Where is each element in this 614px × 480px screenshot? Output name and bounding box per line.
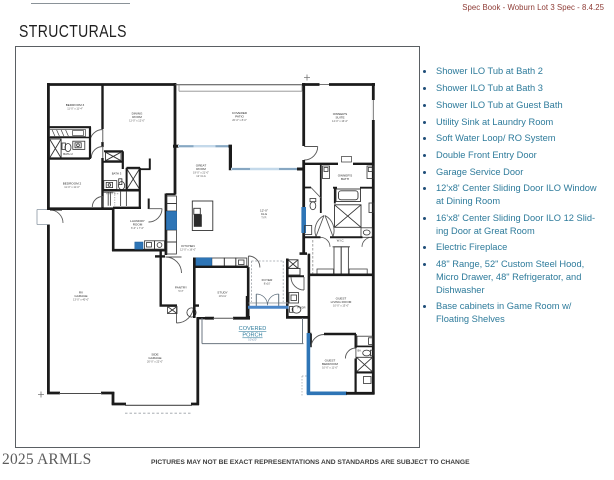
svg-text:GARAGE: GARAGE [148, 356, 161, 360]
svg-text:11'-0" x 11'-4": 11'-0" x 11'-4" [67, 107, 83, 111]
svg-text:BEDROOM: BEDROOM [322, 362, 338, 366]
svg-text:6'-0" x 7'-0": 6'-0" x 7'-0" [131, 226, 144, 230]
svg-text:20'-0" x 22'-0": 20'-0" x 22'-0" [147, 360, 163, 364]
svg-text:LIVING ROOM: LIVING ROOM [331, 300, 352, 304]
svg-text:FOYER: FOYER [262, 278, 273, 282]
svg-text:11'-0" x 11'-0": 11'-0" x 11'-0" [64, 185, 80, 189]
svg-text:W.I.C.: W.I.C. [337, 239, 345, 243]
svg-text:BEDROOM 2: BEDROOM 2 [63, 182, 82, 186]
svg-text:ROOM: ROOM [132, 115, 142, 119]
svg-text:BA.: BA. [357, 350, 361, 353]
svg-text:PATIO: PATIO [235, 115, 244, 119]
svg-text:BATH 2: BATH 2 [63, 152, 73, 156]
svg-text:KITCHEN: KITCHEN [181, 244, 195, 248]
svg-text:TYP.: TYP. [261, 216, 267, 220]
svg-text:12'-0" x 16'-0": 12'-0" x 16'-0" [180, 248, 196, 252]
svg-text:BATH 3: BATH 3 [112, 172, 122, 176]
svg-text:10'x11': 10'x11' [219, 294, 227, 298]
svg-text:SUITE: SUITE [335, 116, 344, 120]
svg-text:10'-0" x 11'-0": 10'-0" x 11'-0" [322, 366, 338, 370]
svg-text:BATH: BATH [341, 177, 349, 181]
svg-text:12' CLG: 12' CLG [196, 174, 205, 178]
svg-text:CLG: CLG [261, 212, 268, 216]
svg-text:20'-0" x 8'-0": 20'-0" x 8'-0" [232, 118, 247, 122]
svg-text:ROOM: ROOM [196, 167, 206, 171]
svg-text:PWDR: PWDR [298, 306, 306, 310]
svg-text:BEDROOM 3: BEDROOM 3 [66, 103, 85, 107]
svg-text:COVERED: COVERED [239, 326, 267, 332]
svg-text:10'x20': 10'x20' [248, 338, 257, 342]
svg-text:14'-0" x 16'-0": 14'-0" x 16'-0" [332, 119, 348, 123]
svg-text:5'x7': 5'x7' [178, 289, 184, 293]
svg-text:PANTRY: PANTRY [175, 286, 187, 290]
svg-text:GARAGE: GARAGE [74, 294, 87, 298]
svg-text:8'x10': 8'x10' [264, 282, 271, 286]
svg-text:10'-0" x 13'-0": 10'-0" x 13'-0" [333, 304, 349, 308]
svg-text:STUDY: STUDY [217, 291, 228, 295]
svg-text:11'-0" x 12'-0": 11'-0" x 12'-0" [129, 119, 145, 123]
svg-text:13'-0" x 40'-0": 13'-0" x 40'-0" [73, 298, 89, 302]
svg-text:ROOM: ROOM [133, 223, 143, 227]
